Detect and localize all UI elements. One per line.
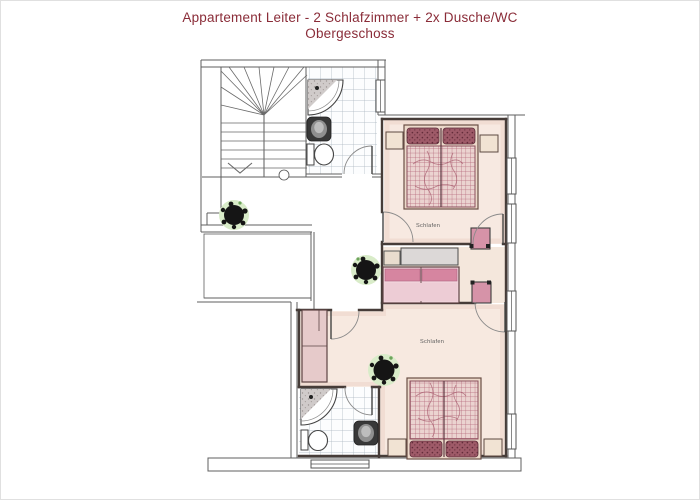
sofa [383,267,459,303]
stair-post [279,170,289,180]
nightstand [388,439,406,456]
pillow [407,128,439,144]
washbasin-lower [354,421,378,445]
potted-plant-icon [351,255,381,285]
toilet-upper [307,144,334,165]
window [507,414,516,449]
potted-plant-icon [368,354,400,386]
window [311,460,369,468]
washbasin-upper [307,117,331,141]
window [376,80,385,112]
pillow [410,441,442,457]
window [507,158,516,194]
nightstand [484,439,502,456]
floorplan-drawing: Schlafen [1,1,700,500]
toilet-lower [301,430,328,451]
shower-drain-icon [309,395,313,399]
void-space [204,234,311,298]
pillow [443,128,475,144]
chair-upper [470,228,491,249]
potted-plant-icon [219,200,249,230]
side-cabinet [384,251,400,265]
nightstand [386,132,403,149]
bedroom-upper-label: Schlafen [416,223,440,229]
shower-drain-icon [315,86,319,90]
bedroom-lower-label: Schlafen [420,339,444,345]
window [507,204,516,243]
staircase [221,67,307,180]
pillow [446,441,478,457]
floorplan-page: Appartement Leiter - 2 Schlafzimmer + 2x… [0,0,700,500]
dresser [401,248,458,265]
nightstand [480,135,498,152]
window [507,291,516,331]
chair-lower [471,281,492,304]
